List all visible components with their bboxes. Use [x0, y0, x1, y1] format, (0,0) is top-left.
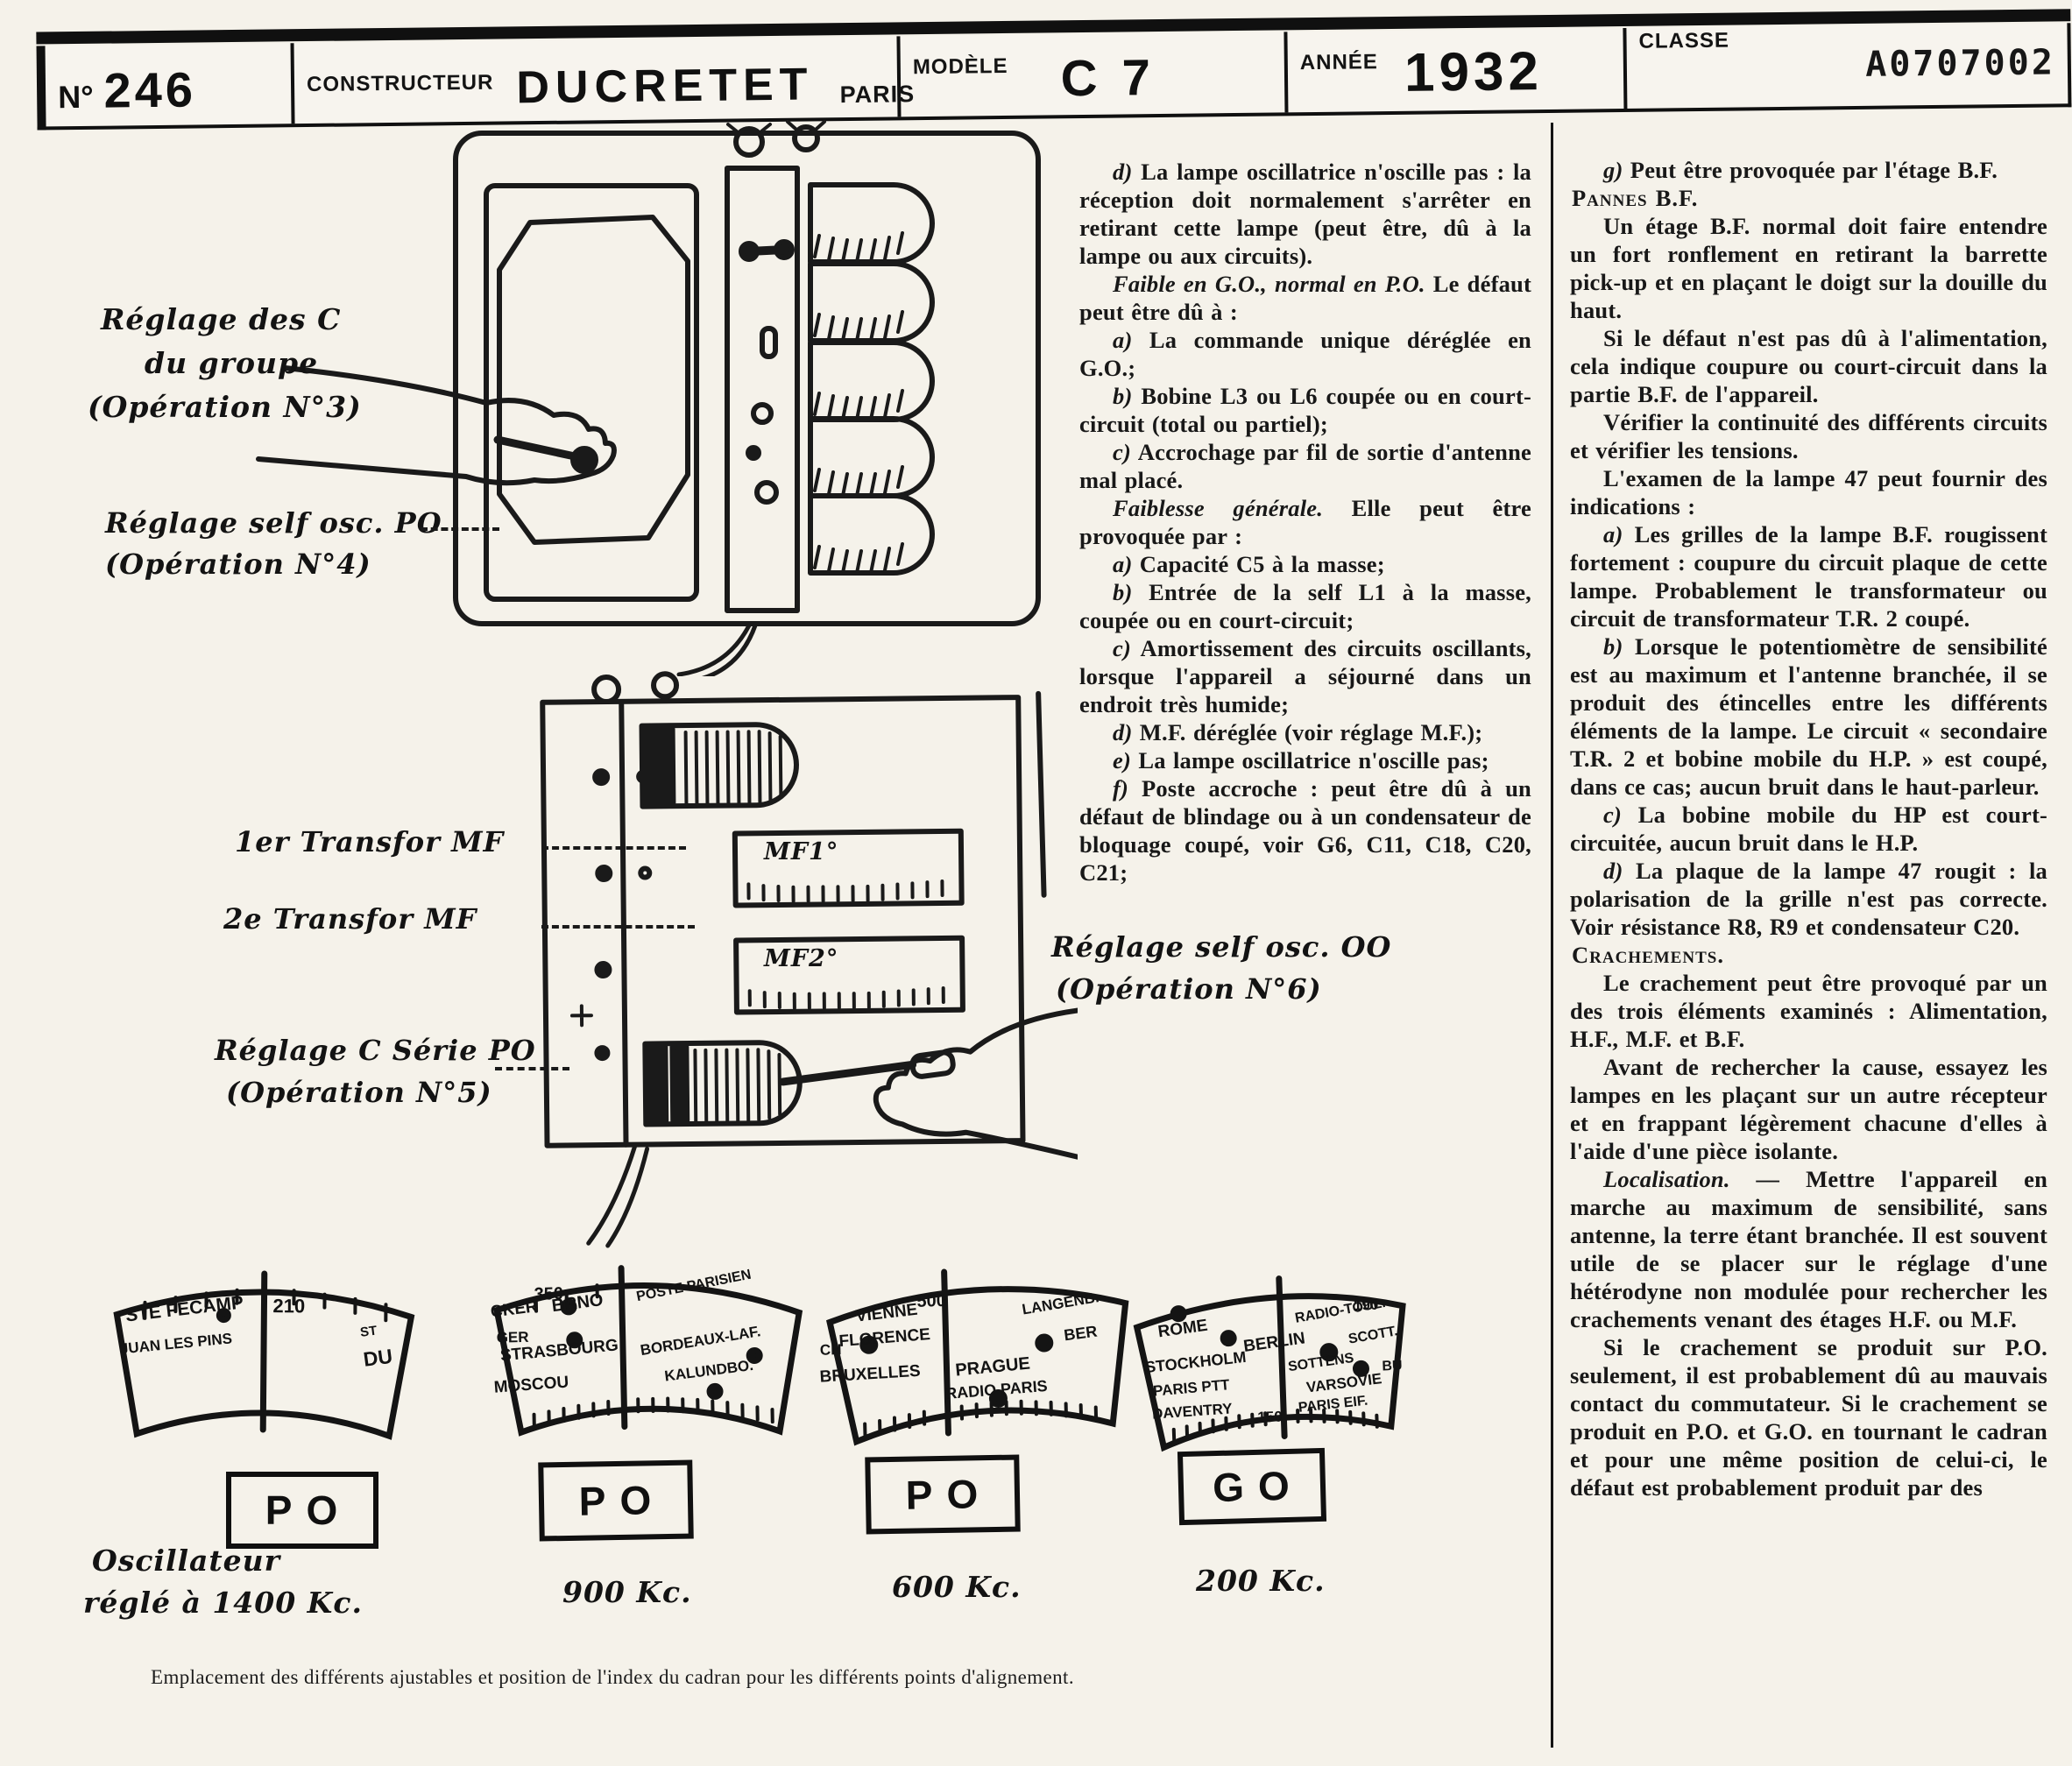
annotation-reglage-c-groupe-line1: Réglage des C — [101, 302, 341, 336]
dial-alignment-200kc: 190 150 ROME RADIO-TOUL. BERLIN SCOTT. S… — [1123, 1263, 1418, 1452]
paragraph: L'examen de la lampe 47 peut fournir des… — [1570, 464, 2047, 520]
annee-value: 1932 — [1404, 40, 1544, 104]
band-label: PO — [905, 1470, 992, 1519]
paragraph: b) Lorsque le potentiomètre de sensibili… — [1570, 632, 2047, 801]
paragraph: f) Poste accroche : peut être dû à un dé… — [1079, 774, 1531, 887]
constructeur-value: DUCRETET — [516, 58, 814, 114]
no-label: N° — [58, 79, 94, 116]
section-heading-pannes-bf: Pannes B.F. — [1570, 184, 2047, 212]
leader-line-c-serie-po — [495, 1067, 569, 1070]
dial-alignment-1400kc: 210 STE FECAMP JUAN LES PINS ST DU — [100, 1260, 428, 1442]
annee-label: ANNÉE — [1300, 50, 1378, 75]
paragraph-text: Poste accroche : peut être dû à un défau… — [1079, 775, 1531, 886]
constructeur-label: CONSTRUCTEUR — [307, 71, 494, 97]
annotation-reglage-c-groupe-line2: du groupe — [145, 346, 318, 380]
paragraph: d) M.F. déréglée (voir réglage M.F.); — [1079, 718, 1531, 746]
paragraph: c) Amortissement des circuits oscillants… — [1079, 634, 1531, 718]
paragraph-lead: b) — [1113, 579, 1132, 605]
classe-value: A0707002 — [1865, 42, 2055, 84]
paragraph-lead: d) — [1113, 719, 1132, 745]
paragraph: a) Capacité C5 à la masse; — [1079, 550, 1531, 578]
header-cell-annee: ANNÉE 1932 — [1287, 28, 1627, 112]
dial-station-label: BU — [1382, 1359, 1403, 1375]
modele-value: C 7 — [1060, 48, 1156, 108]
paragraph: Si le crachement se produit sur P.O. seu… — [1570, 1333, 2047, 1501]
paragraph-lead: e) — [1113, 747, 1131, 774]
annotation-self-osc-oo-line1: Réglage self osc. OO — [1051, 930, 1391, 964]
freq-label-200kc: 200 Kc. — [1196, 1564, 1326, 1598]
leader-line-transfo2 — [541, 925, 695, 929]
no-value: 246 — [103, 60, 196, 118]
paragraph-lead: c) — [1603, 802, 1622, 828]
band-label: GO — [1213, 1461, 1305, 1511]
header-cell-classe: CLASSE A0707002 — [1626, 23, 2068, 109]
paragraph: Faiblesse générale. Elle peut être provo… — [1079, 494, 1531, 550]
paragraph-text: Les grilles de la lampe B.F. rougissent … — [1570, 521, 2047, 632]
paragraph: d) La plaque de la lampe 47 rougit : la … — [1570, 857, 2047, 941]
band-box-po-3: PO — [865, 1454, 1021, 1534]
paragraph: Avant de rechercher la cause, essayez le… — [1570, 1053, 2047, 1165]
paragraph-text: Amortissement des circuits oscillants, l… — [1079, 635, 1531, 717]
dial-alignment-900kc: 350 CKER BRNO GER STRASBOURG MOSCOU POST… — [483, 1251, 815, 1446]
service-sheet-page: N° 246 CONSTRUCTEUR DUCRETET PARIS MODÈL… — [0, 0, 2072, 1766]
paragraph: b) Bobine L3 ou L6 coupée ou en court-ci… — [1079, 382, 1531, 438]
paragraph: Le crachement peut être provoqué par un … — [1570, 969, 2047, 1053]
dial-needle-value: 210 — [272, 1295, 305, 1317]
paragraph-lead: Localisation. — — [1603, 1166, 1779, 1192]
paragraph-lead: g) — [1603, 157, 1623, 183]
paragraph: Un étage B.F. normal doit faire entendre… — [1570, 212, 2047, 324]
modele-label: MODÈLE — [913, 54, 1008, 80]
band-box-go: GO — [1177, 1448, 1326, 1525]
bottom-caption: Emplacement des différents ajustables et… — [151, 1666, 1325, 1689]
heading-text: Crachements. — [1572, 942, 1724, 968]
annotation-reglage-c-groupe-line3: (Opération N°3) — [88, 390, 362, 424]
paragraph: c) Accrochage par fil de sortie d'antenn… — [1079, 438, 1531, 494]
illustration-chassis-adjustment: MF1° MF2° — [473, 670, 1078, 1248]
paragraph-text: Capacité C5 à la masse; — [1132, 551, 1384, 577]
paragraph: d) La lampe oscillatrice n'oscille pas :… — [1079, 158, 1531, 270]
paragraph-text: Entrée de la self L1 à la masse, coupée … — [1079, 579, 1531, 633]
section-heading-crachements: Crachements. — [1570, 941, 2047, 969]
band-label: PO — [578, 1476, 665, 1525]
paragraph: Vérifier la continuité des différents ci… — [1570, 408, 2047, 464]
paragraph-text: Avant de rechercher la cause, essayez le… — [1570, 1054, 2047, 1164]
paragraph-text: Un étage B.F. normal doit faire entendre… — [1570, 213, 2047, 323]
paragraph-lead: Faiblesse générale. — [1113, 495, 1323, 521]
band-box-po-1: PO — [226, 1472, 378, 1549]
text-column-middle: d) La lampe oscillatrice n'oscille pas :… — [1079, 158, 1531, 887]
label-mf2: MF2° — [764, 945, 838, 972]
paragraph-lead: a) — [1603, 521, 1623, 547]
paragraph-text: L'examen de la lampe 47 peut fournir des… — [1570, 465, 2047, 519]
dial-station-label: DU — [362, 1345, 393, 1372]
paragraph: a) La commande unique déréglée en G.O.; — [1079, 326, 1531, 382]
paragraph: Si le défaut n'est pas dû à l'alimentati… — [1570, 324, 2047, 408]
paragraph: b) Entrée de la self L1 à la masse, coup… — [1079, 578, 1531, 634]
paragraph: Localisation. — Mettre l'appareil en mar… — [1570, 1165, 2047, 1333]
paragraph-lead: f) — [1113, 775, 1128, 802]
paragraph: c) La bobine mobile du HP est court-circ… — [1570, 801, 2047, 857]
paragraph-text: Lorsque le potentiomètre de sensibilité … — [1570, 633, 2047, 800]
dial-needle-value: 500 — [916, 1291, 946, 1312]
paragraph-text: Le crachement peut être provoqué par un … — [1570, 970, 2047, 1052]
freq-label-900kc: 900 Kc. — [562, 1575, 692, 1609]
leader-line-self-osc-po — [421, 527, 499, 531]
paragraph-text: La bobine mobile du HP est court-circuit… — [1570, 802, 2047, 856]
annotation-transfo2-mf: 2e Transfor MF — [223, 902, 477, 936]
paragraph-text: Peut être provoquée par l'étage B.F. — [1623, 157, 1998, 183]
header-cell-modele: MODÈLE C 7 — [900, 32, 1288, 117]
paragraph-text: Si le crachement se produit sur P.O. seu… — [1570, 1334, 2047, 1501]
annotation-self-osc-oo-line2: (Opération N°6) — [1056, 972, 1322, 1006]
leader-line-transfo1 — [541, 846, 686, 850]
paragraph: Faible en G.O., normal en P.O. Le défaut… — [1079, 270, 1531, 326]
text-column-right: g) Peut être provoquée par l'étage B.F. … — [1570, 156, 2047, 1501]
label-mf1: MF1° — [764, 838, 838, 865]
paragraph: a) Les grilles de la lampe B.F. rougisse… — [1570, 520, 2047, 632]
paragraph-text: Si le défaut n'est pas dû à l'alimentati… — [1570, 325, 2047, 407]
paragraph-text: La commande unique déréglée en G.O.; — [1079, 327, 1531, 381]
dial-fan-svg — [812, 1254, 1145, 1447]
paragraph-text: La lampe oscillatrice n'oscille pas : la… — [1079, 159, 1531, 269]
dial-alignment-600kc: 500 CH VIENNE FLORENCE BRUXELLES LANGENB… — [812, 1254, 1145, 1447]
freq-label-600kc: 600 Kc. — [892, 1570, 1022, 1604]
paragraph: g) Peut être provoquée par l'étage B.F. — [1570, 156, 2047, 184]
paragraph-text: La plaque de la lampe 47 rougit : la pol… — [1570, 858, 2047, 940]
paragraph-text: Bobine L3 ou L6 coupée ou en court-circu… — [1079, 383, 1531, 437]
paragraph-lead: b) — [1113, 383, 1132, 409]
band-box-po-2: PO — [538, 1459, 694, 1541]
paragraph-lead: d) — [1113, 159, 1132, 185]
paragraph-lead: b) — [1603, 633, 1623, 660]
paragraph-text: Vérifier la continuité des différents ci… — [1570, 409, 2047, 463]
annotation-reglage-c-serie-po-line1: Réglage C Série PO — [215, 1034, 536, 1067]
paragraph-text: Accrochage par fil de sortie d'antenne m… — [1079, 439, 1531, 493]
classe-label: CLASSE — [1638, 29, 1729, 54]
paragraph-lead: d) — [1603, 858, 1623, 884]
freq-label-oscillateur-line1: Oscillateur — [92, 1543, 280, 1578]
annotation-reglage-c-serie-po-line2: (Opération N°5) — [226, 1076, 492, 1109]
paragraph-lead: c) — [1113, 439, 1131, 465]
paragraph-lead: c) — [1113, 635, 1131, 661]
paragraph-lead: a) — [1113, 551, 1132, 577]
heading-text: Pannes B.F. — [1572, 185, 1698, 211]
annotation-self-osc-po-line2: (Opération N°4) — [105, 547, 371, 581]
column-divider-rule — [1551, 123, 1553, 1748]
paragraph-lead: a) — [1113, 327, 1132, 353]
freq-label-oscillateur-line2: réglé à 1400 Kc. — [83, 1586, 363, 1620]
paragraph-text: M.F. déréglée (voir réglage M.F.); — [1132, 719, 1482, 745]
dial-station-label: ST — [359, 1324, 378, 1340]
paragraph: e) La lampe oscillatrice n'oscille pas; — [1079, 746, 1531, 774]
paragraph-lead: Faible en G.O., normal en P.O. — [1113, 271, 1425, 297]
annotation-transfo1-mf: 1er Transfor MF — [235, 825, 504, 858]
dial-needle-value-2: 150 — [1257, 1409, 1283, 1427]
band-label: PO — [265, 1487, 351, 1534]
annotation-self-osc-po-line1: Réglage self osc. PO — [105, 506, 442, 540]
paragraph-text: La lampe oscillatrice n'oscille pas; — [1131, 747, 1489, 774]
